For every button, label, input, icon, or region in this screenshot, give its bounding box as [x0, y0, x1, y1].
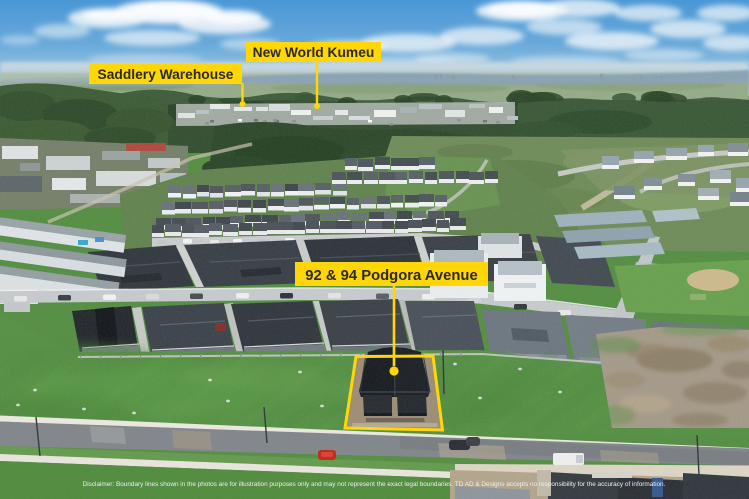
svg-text:New World Kumeu: New World Kumeu: [253, 45, 375, 60]
svg-text:92 & 94 Podgora Avenue: 92 & 94 Podgora Avenue: [305, 268, 477, 284]
svg-text:Saddlery Warehouse: Saddlery Warehouse: [98, 67, 234, 82]
svg-text:Disclaimer: Boundary lines sho: Disclaimer: Boundary lines shown in the …: [83, 481, 666, 488]
